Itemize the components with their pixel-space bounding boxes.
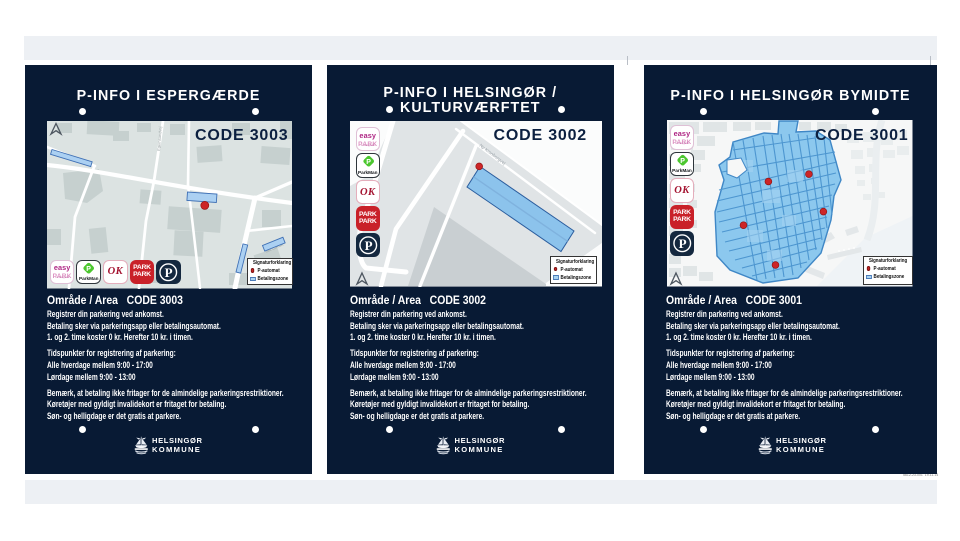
svg-text:P: P [165,264,173,279]
svg-text:P: P [366,159,371,166]
svg-text:P: P [678,236,686,251]
svg-text:P: P [87,265,92,272]
svg-text:P: P [364,238,372,253]
svg-text:P: P [680,157,685,164]
